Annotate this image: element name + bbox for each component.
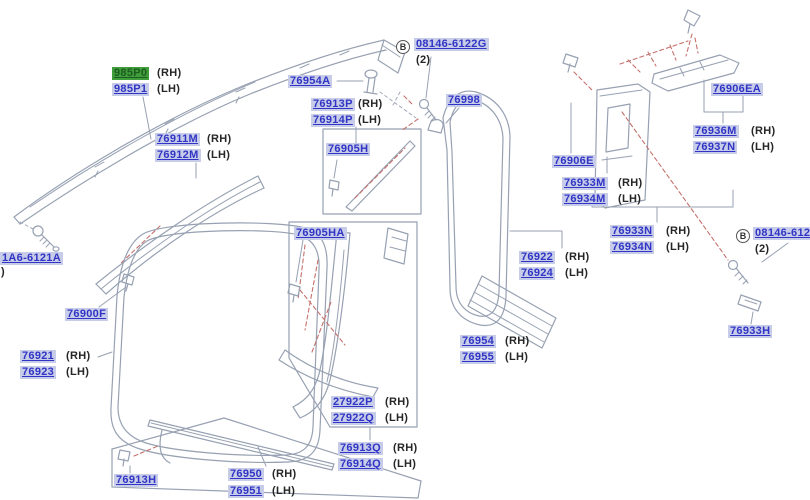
part-label-76933M[interactable]: 76933M: [562, 177, 608, 190]
part-label-76954[interactable]: 76954: [460, 335, 496, 348]
front-pillar-garnish-drawing: [96, 97, 264, 307]
part-label-76921[interactable]: 76921: [20, 350, 56, 363]
side-indicator-lh: (LH): [393, 458, 416, 471]
part-label-76912M[interactable]: 76912M: [155, 149, 201, 162]
part-label-1A6-6121A-clipped[interactable]: 1A6-6121A: [0, 252, 63, 265]
side-indicator-lh: (LH): [272, 485, 295, 498]
part-label-76914Q[interactable]: 76914Q: [338, 458, 383, 471]
part-label-76913H[interactable]: 76913H: [114, 474, 158, 487]
side-indicator-rh: (RH): [66, 350, 90, 363]
side-indicator-rh: (RH): [207, 133, 231, 146]
side-indicator-lh: (LH): [505, 351, 528, 364]
part-label-27922P[interactable]: 27922P: [331, 396, 375, 409]
part-label-76933N[interactable]: 76933N: [610, 225, 654, 238]
rear-roof-garnish-drawing: [620, 10, 743, 123]
part-label-76900F[interactable]: 76900F: [65, 308, 108, 321]
clipped-quantity-text: ): [1, 266, 5, 279]
part-label-76905HA[interactable]: 76905HA: [294, 227, 347, 240]
side-indicator-rh: (RH): [393, 442, 417, 455]
part-label-76937N[interactable]: 76937N: [693, 141, 737, 154]
quantity-indicator: (2): [755, 243, 769, 256]
rear-door-weatherstrip-drawing: [443, 91, 562, 325]
part-label-985P0-highlighted[interactable]: 985P0: [112, 67, 149, 80]
side-indicator-rh: (RH): [751, 125, 775, 138]
side-indicator-lh: (LH): [358, 114, 381, 127]
left-bolt-drawing: [33, 226, 59, 251]
side-indicator-lh: (LH): [207, 149, 230, 162]
part-label-27922Q[interactable]: 27922Q: [331, 412, 376, 425]
side-indicator-lh: (LH): [751, 141, 774, 154]
side-indicator-lh: (LH): [157, 83, 180, 96]
side-indicator-rh: (RH): [358, 98, 382, 111]
part-label-76936M[interactable]: 76936M: [693, 125, 739, 138]
side-indicator-rh: (RH): [618, 177, 642, 190]
part-label-76933H[interactable]: 76933H: [728, 325, 772, 338]
part-label-76913P[interactable]: 76913P: [311, 98, 355, 111]
side-indicator-lh: (LH): [66, 366, 89, 379]
part-label-76906E[interactable]: 76906E: [552, 155, 596, 168]
part-label-76905H[interactable]: 76905H: [326, 143, 370, 156]
pillar-garnish-detail-box: [323, 127, 421, 214]
side-indicator-rh: (RH): [272, 468, 296, 481]
part-label-76906EA[interactable]: 76906EA: [711, 83, 763, 96]
part-label-76911M[interactable]: 76911M: [155, 133, 200, 146]
side-indicator-rh: (RH): [385, 396, 409, 409]
parts-diagram-canvas: 985P0 985P1 (RH) (LH) 76911M 76912M (RH)…: [0, 0, 810, 500]
side-indicator-rh: (RH): [666, 225, 690, 238]
part-label-76922[interactable]: 76922: [519, 251, 555, 264]
quantity-indicator: (2): [416, 54, 430, 67]
part-label-76934M[interactable]: 76934M: [562, 193, 608, 206]
part-label-76954A[interactable]: 76954A: [288, 75, 332, 88]
side-indicator-lh: (LH): [385, 412, 408, 425]
side-indicator-lh: (LH): [565, 267, 588, 280]
front-door-weatherstrip-drawing: [98, 223, 327, 462]
part-label-76951[interactable]: 76951: [228, 485, 264, 498]
upper-fasteners-drawing: [337, 57, 459, 133]
side-indicator-rh: (RH): [157, 67, 181, 80]
part-label-08146-6122G-right-clipped[interactable]: 08146-6122G: [753, 227, 810, 240]
part-label-76934N[interactable]: 76934N: [610, 241, 654, 254]
side-indicator-rh: (RH): [565, 251, 589, 264]
part-label-985P1[interactable]: 985P1: [112, 83, 149, 96]
bolt-ref-marker-b: B: [396, 40, 410, 54]
part-label-76914P[interactable]: 76914P: [311, 114, 355, 127]
part-label-76955[interactable]: 76955: [460, 351, 496, 364]
part-label-08146-6122G[interactable]: 08146-6122G: [414, 38, 489, 51]
part-label-76913Q[interactable]: 76913Q: [338, 442, 383, 455]
part-label-76998[interactable]: 76998: [446, 94, 482, 107]
side-indicator-lh: (LH): [618, 193, 641, 206]
part-label-76924[interactable]: 76924: [519, 267, 555, 280]
side-indicator-rh: (RH): [505, 335, 529, 348]
part-label-76923[interactable]: 76923: [20, 366, 56, 379]
side-indicator-lh: (LH): [666, 241, 689, 254]
part-label-76950[interactable]: 76950: [228, 468, 264, 481]
bolt-ref-marker-b: B: [736, 229, 750, 243]
